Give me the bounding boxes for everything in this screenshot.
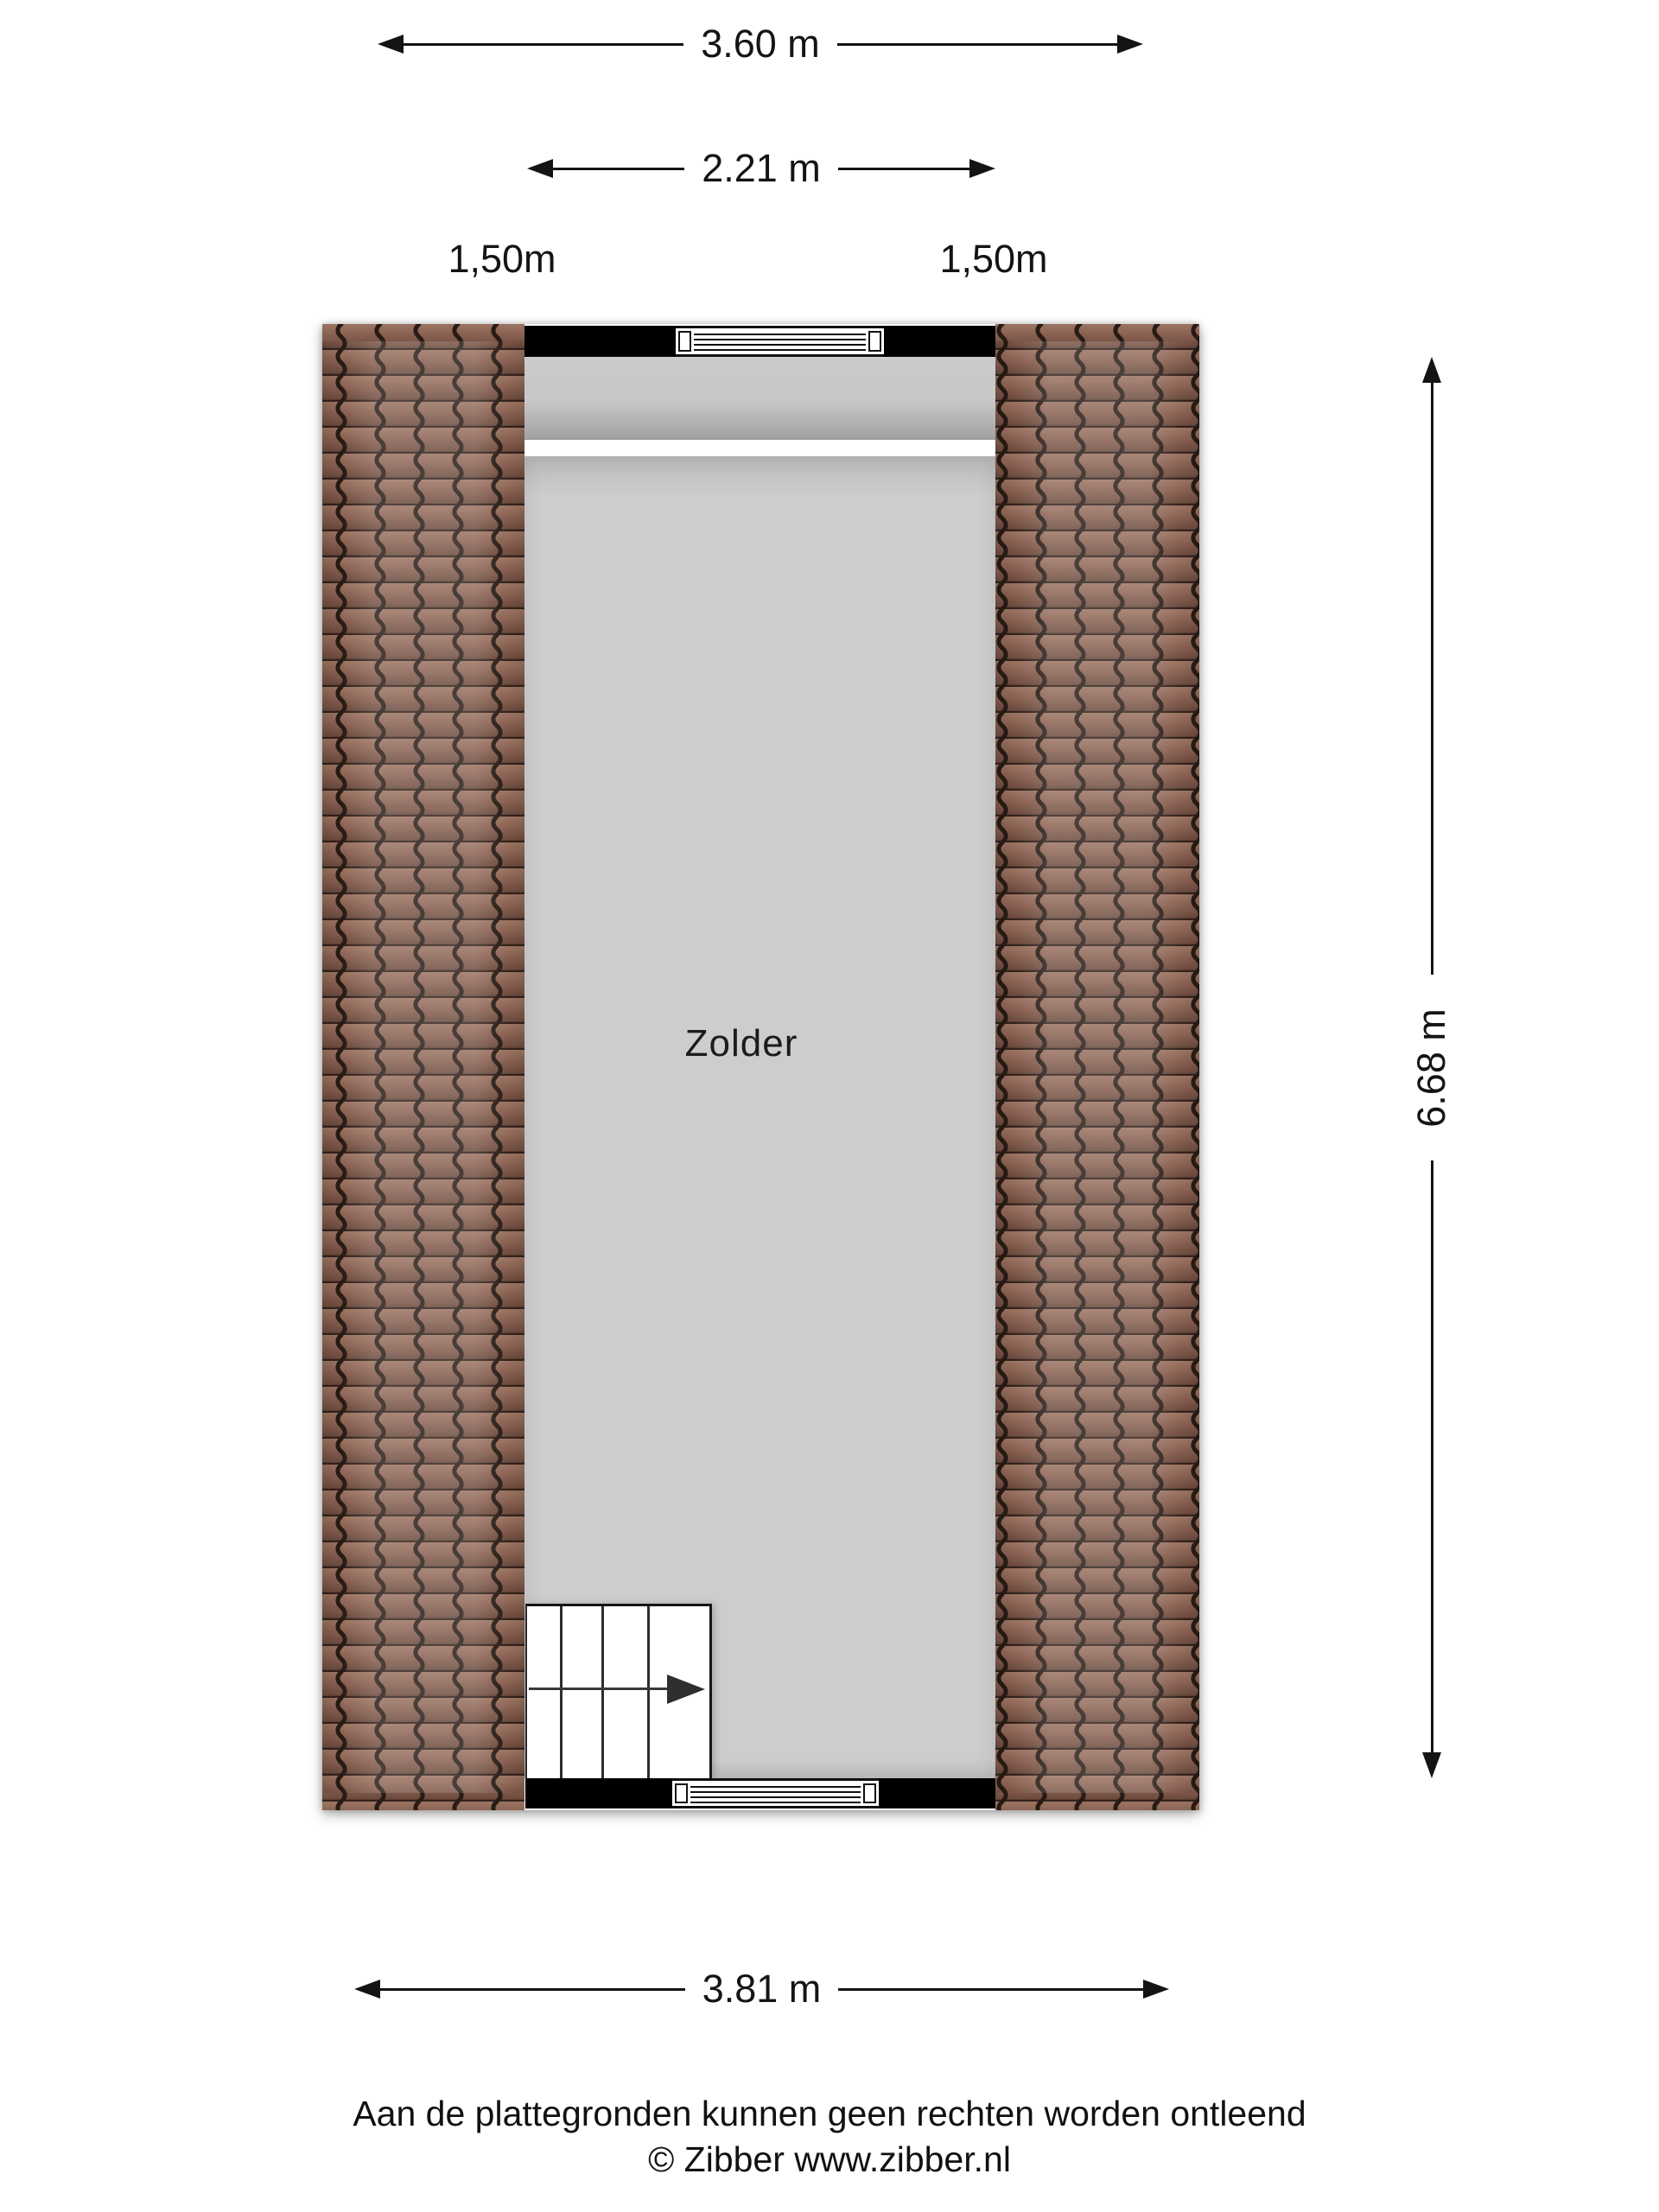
roof-tiles-right (995, 324, 1199, 1810)
wall-top-right (884, 326, 995, 357)
window-glass-line (694, 339, 866, 340)
footer: Aan de plattegronden kunnen geen rechten… (0, 2091, 1659, 2183)
dimension-line (838, 1988, 1143, 1991)
stairs-direction-arrow-line (529, 1688, 667, 1690)
window-frame-post (868, 331, 881, 352)
window-top (676, 326, 884, 357)
window-glass-line (690, 1802, 861, 1803)
dimension-line (1431, 383, 1433, 975)
dimension-line (404, 43, 683, 46)
window-glass-line (694, 349, 866, 351)
arrowhead-right-icon (969, 159, 995, 178)
window-glass-line (690, 1796, 861, 1798)
window-frame-post (863, 1783, 876, 1803)
ceiling-ridge-band (524, 438, 995, 458)
wall-top-left (524, 326, 676, 357)
dimension-line (553, 168, 684, 170)
floorplan-page: 3.60 m 2.21 m 1,50m 1,50m 6.68 m 3.81 m (0, 0, 1659, 2212)
window-glass-line (690, 1786, 861, 1788)
attic-floor-upper-slope (524, 357, 995, 438)
stair-step-line (647, 1606, 650, 1778)
dimension-label-inner-width: 2.21 m (684, 146, 838, 191)
dimension-label-total-width-top: 3.60 m (683, 22, 837, 67)
window-glass-line (694, 344, 866, 346)
dimension-total-width-top: 3.60 m (378, 10, 1143, 79)
dimension-label-length-right: 6.68 m (1409, 1008, 1454, 1128)
dimension-label-total-width-bottom: 3.81 m (685, 1967, 839, 2012)
window-bottom (672, 1778, 879, 1808)
dimension-line (838, 168, 969, 170)
dimension-inner-width: 2.21 m (527, 134, 995, 203)
arrowhead-left-icon (527, 159, 553, 178)
dimension-total-width-bottom: 3.81 m (354, 1955, 1169, 2024)
window-glass-line (690, 1791, 861, 1793)
arrowhead-down-icon (1422, 1752, 1441, 1778)
arrowhead-left-icon (354, 1980, 380, 1999)
footer-disclaimer: Aan de plattegronden kunnen geen rechten… (0, 2091, 1659, 2137)
dimension-line (1431, 1160, 1433, 1752)
window-frame-post (675, 1783, 688, 1803)
stair-step-line (601, 1606, 604, 1778)
dimension-length-right: 6.68 m (1397, 357, 1466, 1778)
stair-step-line (560, 1606, 563, 1778)
footer-copyright: © Zibber www.zibber.nl (0, 2137, 1659, 2183)
arrowhead-right-icon (1143, 1980, 1169, 1999)
stairs-direction-arrow-icon (667, 1675, 705, 1704)
arrowhead-left-icon (378, 35, 404, 54)
room-label: Zolder (685, 1022, 798, 1065)
height-line-label-left: 1,50m (448, 237, 556, 282)
wall-bottom-left (525, 1778, 672, 1808)
window-glass-line (694, 334, 866, 335)
roof-tiles-left (322, 324, 524, 1810)
height-line-label-right: 1,50m (939, 237, 1047, 282)
attic-floor (524, 458, 995, 1778)
arrowhead-up-icon (1422, 357, 1441, 383)
arrowhead-right-icon (1117, 35, 1143, 54)
dimension-line (380, 1988, 685, 1991)
dimension-line (837, 43, 1117, 46)
wall-bottom-right (879, 1778, 995, 1808)
window-frame-post (678, 331, 691, 352)
